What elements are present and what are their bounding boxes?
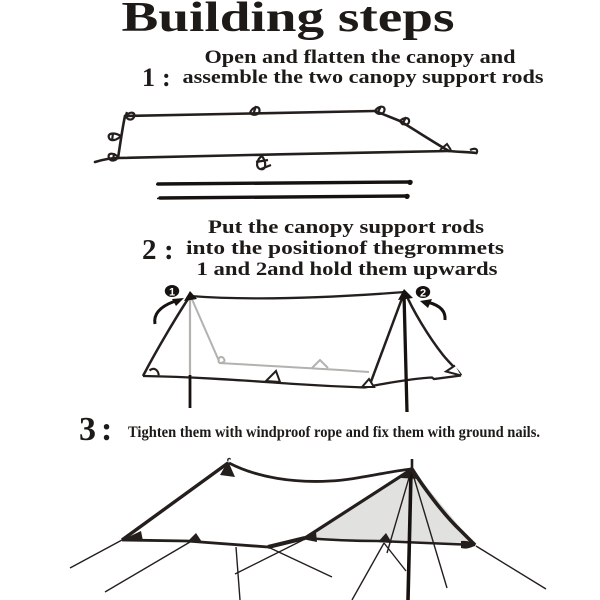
svg-text:Open and flatten the canopy an: Open and flatten the canopy and [205,47,516,68]
svg-text:2: 2 [420,288,426,300]
svg-text:Building steps: Building steps [122,0,455,41]
svg-text:1: 1 [142,63,155,92]
svg-text:Tighten them with windproof ro: Tighten them with windproof rope and fix… [128,424,540,441]
svg-text:3: 3 [79,411,96,448]
svg-text::: : [162,63,171,92]
svg-text::: : [101,411,112,448]
svg-text:2: 2 [142,234,157,266]
svg-text:Put the canopy support rods: Put the canopy support rods [208,217,484,238]
svg-text:into the positionof thegrommet: into the positionof thegrommets [186,238,504,259]
svg-text:1 and 2and hold them upwards: 1 and 2and hold them upwards [197,259,498,280]
svg-text:1: 1 [169,287,175,299]
svg-text:assemble the two canopy suppor: assemble the two canopy support rods [183,67,544,88]
svg-text::: : [164,234,174,266]
